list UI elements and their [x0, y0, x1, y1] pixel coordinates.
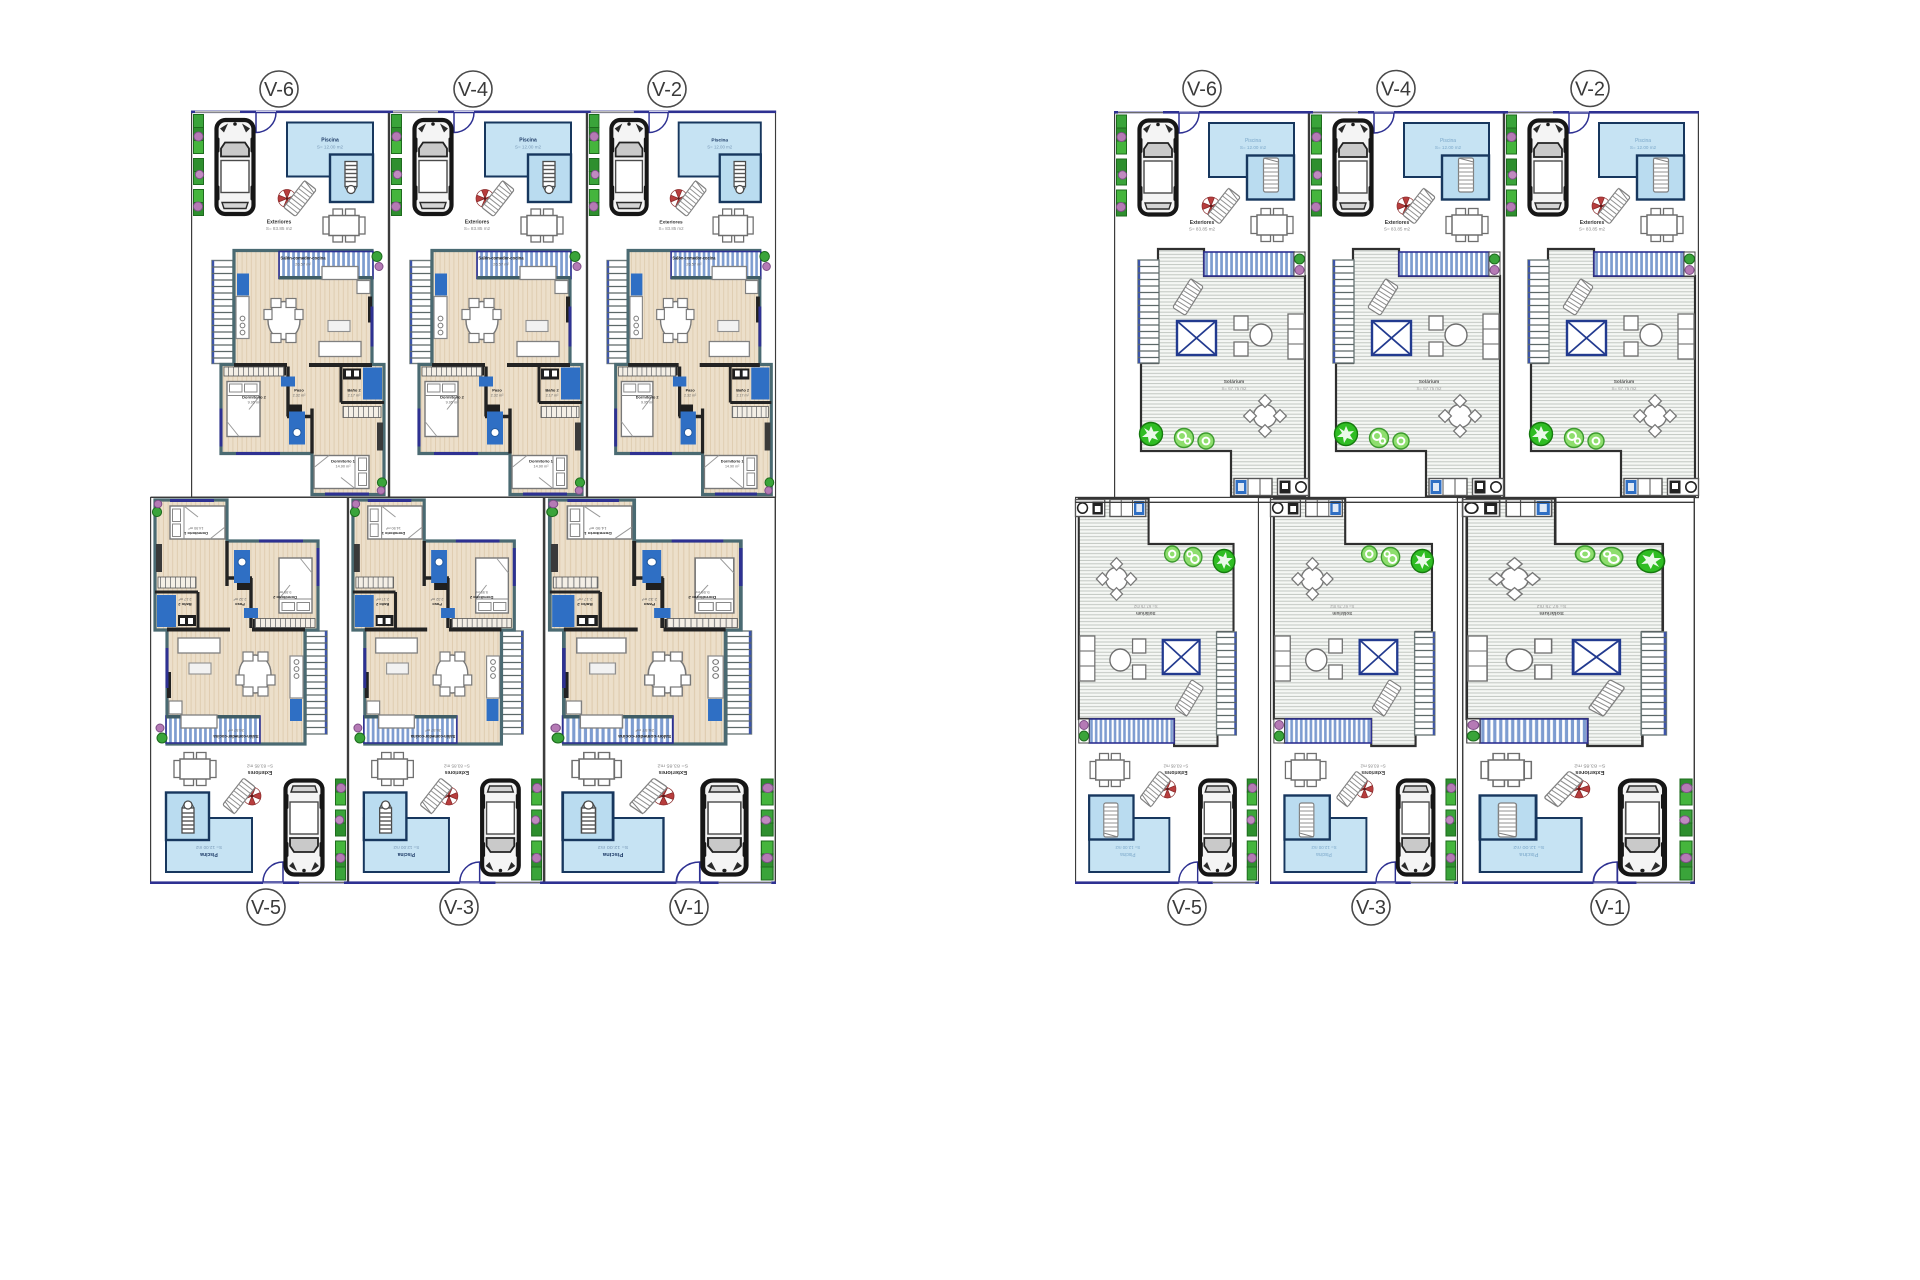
svg-text:V-2: V-2 [1575, 79, 1605, 101]
svg-text:V-4: V-4 [458, 79, 488, 101]
svg-text:V-5: V-5 [1172, 897, 1202, 919]
svg-text:V-6: V-6 [264, 79, 294, 101]
svg-text:V-4: V-4 [1381, 79, 1411, 101]
svg-text:V-6: V-6 [1187, 79, 1217, 101]
svg-text:V-2: V-2 [652, 79, 682, 101]
svg-text:V-3: V-3 [1356, 897, 1386, 919]
svg-text:V-5: V-5 [251, 897, 281, 919]
svg-text:V-1: V-1 [1595, 897, 1625, 919]
svg-text:V-1: V-1 [674, 897, 704, 919]
svg-text:V-3: V-3 [444, 897, 474, 919]
